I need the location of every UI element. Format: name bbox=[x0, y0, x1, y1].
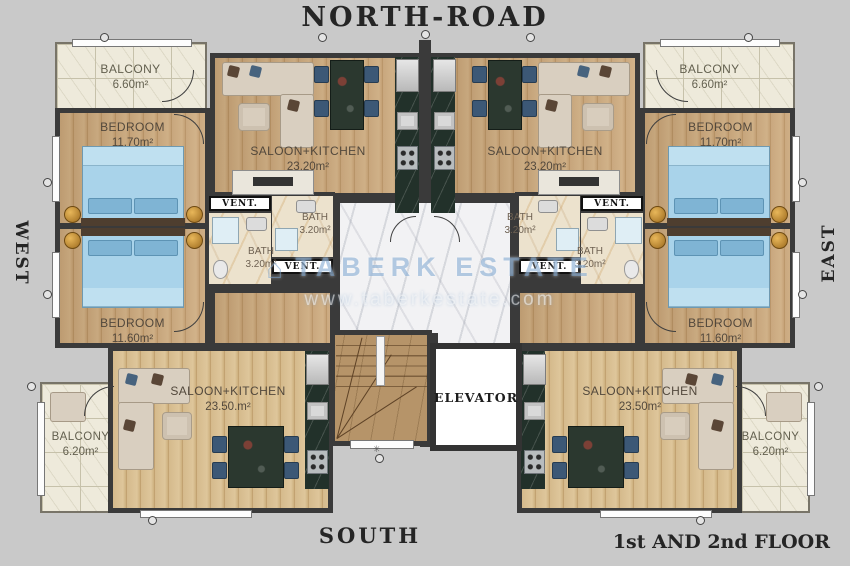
bedroom-label: BEDROOM 11.60m² bbox=[70, 316, 195, 347]
bed bbox=[82, 146, 184, 226]
room-area: 3.20m² bbox=[299, 225, 330, 238]
vent-label: VENT. bbox=[222, 199, 258, 209]
stair-entry-door bbox=[350, 440, 414, 449]
room-area: 23.50.m² bbox=[205, 400, 250, 415]
saloon-label: SALOON+KITCHEN 23.20m² bbox=[475, 144, 615, 175]
dimension-marker bbox=[526, 33, 535, 42]
room-name: BALCONY bbox=[100, 62, 160, 78]
window bbox=[792, 252, 800, 318]
east-title: EAST bbox=[819, 208, 839, 298]
bed-pillow bbox=[720, 240, 764, 256]
stove bbox=[524, 450, 545, 474]
kitchen-sink bbox=[397, 112, 418, 130]
west-title: WEST bbox=[11, 208, 31, 298]
dining-table bbox=[228, 426, 284, 488]
stove bbox=[434, 146, 455, 170]
sofa bbox=[118, 402, 154, 470]
floor-caption: 1st AND 2nd FLOOR bbox=[600, 531, 830, 553]
armchair bbox=[50, 392, 86, 422]
coffee-table bbox=[162, 412, 192, 440]
bed-pillow bbox=[134, 240, 178, 256]
kitchen-sink bbox=[524, 402, 545, 420]
bath-label: BATH 3.20m² bbox=[492, 212, 548, 237]
window bbox=[72, 39, 192, 47]
room-area: 6.60m² bbox=[113, 78, 149, 93]
bed bbox=[668, 228, 770, 308]
nightstand bbox=[771, 232, 788, 249]
bedroom-label: BEDROOM 11.60m² bbox=[658, 316, 783, 347]
kitchen-sink bbox=[434, 112, 455, 130]
room-name: SALOON+KITCHEN bbox=[582, 384, 697, 400]
bed-headboard bbox=[667, 218, 771, 226]
bed bbox=[82, 228, 184, 308]
bed-pillow bbox=[134, 198, 178, 214]
armchair bbox=[766, 392, 802, 422]
nightstand bbox=[649, 206, 666, 223]
vent-box: VENT. bbox=[581, 196, 643, 211]
room-area: 11.70m² bbox=[112, 136, 153, 151]
floor-plan: NORTH-ROAD SOUTH WEST EAST 1st AND 2nd F… bbox=[0, 0, 850, 566]
dimension-marker bbox=[744, 33, 753, 42]
dimension-marker bbox=[43, 178, 52, 187]
balcony-label: BALCONY 6.20m² bbox=[733, 430, 808, 460]
room-area: 11.70m² bbox=[700, 136, 741, 151]
nightstand bbox=[64, 232, 81, 249]
dimension-marker bbox=[798, 290, 807, 299]
room-area: 3.20m² bbox=[245, 259, 276, 272]
sink-basin bbox=[246, 217, 267, 231]
saloon-label: SALOON+KITCHEN 23.20m² bbox=[238, 144, 378, 175]
north-road-title: NORTH-ROAD bbox=[0, 2, 850, 33]
chair bbox=[284, 462, 299, 479]
window bbox=[52, 136, 60, 202]
bed-headboard bbox=[667, 228, 771, 236]
dimension-marker bbox=[43, 290, 52, 299]
saloon-label: SALOON+KITCHEN 23.50m² bbox=[570, 384, 710, 415]
room-name: BEDROOM bbox=[100, 120, 165, 136]
room-area: 11.60m² bbox=[112, 332, 153, 347]
dimension-marker bbox=[375, 454, 384, 463]
room-name: BEDROOM bbox=[688, 316, 753, 332]
dining-table bbox=[488, 60, 522, 130]
bed-pillow bbox=[674, 240, 718, 256]
balcony-label: BALCONY 6.20m² bbox=[43, 430, 118, 460]
dining-table bbox=[330, 60, 364, 130]
room-area: 6.60m² bbox=[692, 78, 728, 93]
bed-pillow bbox=[720, 198, 764, 214]
shower bbox=[212, 217, 239, 244]
party-wall bbox=[419, 40, 431, 215]
corridor bbox=[335, 198, 515, 350]
chair bbox=[364, 100, 379, 117]
window bbox=[807, 402, 815, 496]
room-area: 23.50m² bbox=[619, 400, 661, 415]
dining-table bbox=[568, 426, 624, 488]
chair bbox=[624, 462, 639, 479]
stove bbox=[307, 450, 328, 474]
vent-label: VENT. bbox=[594, 199, 630, 209]
elevator: ELEVATOR bbox=[430, 343, 522, 451]
coffee-table bbox=[582, 103, 614, 131]
vent-label: VENT. bbox=[285, 262, 321, 272]
chair bbox=[314, 66, 329, 83]
chair bbox=[624, 436, 639, 453]
room-area: 3.20m² bbox=[504, 225, 535, 238]
room-area: 23.20m² bbox=[524, 160, 566, 175]
room-name: BALCONY bbox=[742, 430, 800, 445]
bed-headboard bbox=[81, 218, 185, 226]
room-name: BATH bbox=[248, 246, 274, 259]
room-name: BATH bbox=[577, 246, 603, 259]
bath-label: BATH 3.20m² bbox=[287, 212, 343, 237]
window bbox=[52, 252, 60, 318]
bedroom-label: BEDROOM 11.70m² bbox=[658, 120, 783, 151]
nightstand bbox=[649, 232, 666, 249]
room-name: BATH bbox=[507, 212, 533, 225]
chair bbox=[552, 436, 567, 453]
balcony-label: BALCONY 6.60m² bbox=[68, 62, 193, 93]
stair-stringer bbox=[376, 336, 385, 386]
dimension-marker bbox=[318, 33, 327, 42]
nightstand bbox=[186, 232, 203, 249]
bedroom-label: BEDROOM 11.70m² bbox=[70, 120, 195, 151]
chair bbox=[364, 66, 379, 83]
coffee-table bbox=[660, 412, 690, 440]
room-area: 23.20m² bbox=[287, 160, 329, 175]
fridge bbox=[396, 59, 419, 92]
fridge bbox=[306, 354, 329, 385]
chair bbox=[284, 436, 299, 453]
coffee-table bbox=[238, 103, 270, 131]
toilet bbox=[624, 260, 639, 279]
chair bbox=[522, 66, 537, 83]
chair bbox=[472, 66, 487, 83]
chair bbox=[522, 100, 537, 117]
bath-label: BATH 3.20m² bbox=[562, 246, 618, 271]
room-name: BEDROOM bbox=[688, 120, 753, 136]
bed bbox=[668, 146, 770, 226]
elevator-label: ELEVATOR bbox=[434, 390, 518, 405]
room-area: 6.20m² bbox=[63, 445, 99, 460]
tv bbox=[559, 177, 599, 186]
bed-pillow bbox=[88, 240, 132, 256]
nightstand bbox=[771, 206, 788, 223]
dimension-marker bbox=[814, 382, 823, 391]
window bbox=[140, 510, 252, 518]
hall-bottom-left bbox=[210, 288, 335, 348]
nightstand bbox=[64, 206, 81, 223]
toilet bbox=[213, 260, 228, 279]
room-name: BALCONY bbox=[679, 62, 739, 78]
vent-box: VENT. bbox=[209, 196, 271, 211]
window bbox=[660, 39, 780, 47]
fridge bbox=[523, 354, 546, 385]
bed-headboard bbox=[81, 228, 185, 236]
room-area: 6.20m² bbox=[753, 445, 789, 460]
bed-blanket bbox=[83, 288, 183, 307]
chair bbox=[472, 100, 487, 117]
window bbox=[792, 136, 800, 202]
stove bbox=[397, 146, 418, 170]
room-area: 3.20m² bbox=[574, 259, 605, 272]
room-name: BEDROOM bbox=[100, 316, 165, 332]
room-name: SALOON+KITCHEN bbox=[487, 144, 602, 160]
dimension-marker bbox=[798, 178, 807, 187]
fridge bbox=[433, 59, 456, 92]
bed-pillow bbox=[88, 198, 132, 214]
chair bbox=[314, 100, 329, 117]
room-name: SALOON+KITCHEN bbox=[170, 384, 285, 400]
flower-glyph: ✳ bbox=[373, 444, 381, 455]
dimension-marker bbox=[100, 33, 109, 42]
room-name: BATH bbox=[302, 212, 328, 225]
balcony-label: BALCONY 6.60m² bbox=[647, 62, 772, 93]
chair bbox=[212, 436, 227, 453]
room-area: 11.60m² bbox=[700, 332, 741, 347]
room-name: BALCONY bbox=[52, 430, 110, 445]
sink-basin bbox=[587, 217, 608, 231]
chair bbox=[552, 462, 567, 479]
bed-blanket bbox=[669, 288, 769, 307]
tv bbox=[253, 177, 293, 186]
nightstand bbox=[186, 206, 203, 223]
kitchen-sink bbox=[307, 402, 328, 420]
window bbox=[600, 510, 712, 518]
bed-pillow bbox=[674, 198, 718, 214]
bath-label: BATH 3.20m² bbox=[233, 246, 289, 271]
saloon-label: SALOON+KITCHEN 23.50.m² bbox=[158, 384, 298, 415]
hall-bottom-right bbox=[515, 288, 640, 348]
room-name: SALOON+KITCHEN bbox=[250, 144, 365, 160]
shower bbox=[615, 217, 642, 244]
chair bbox=[212, 462, 227, 479]
dimension-marker bbox=[27, 382, 36, 391]
